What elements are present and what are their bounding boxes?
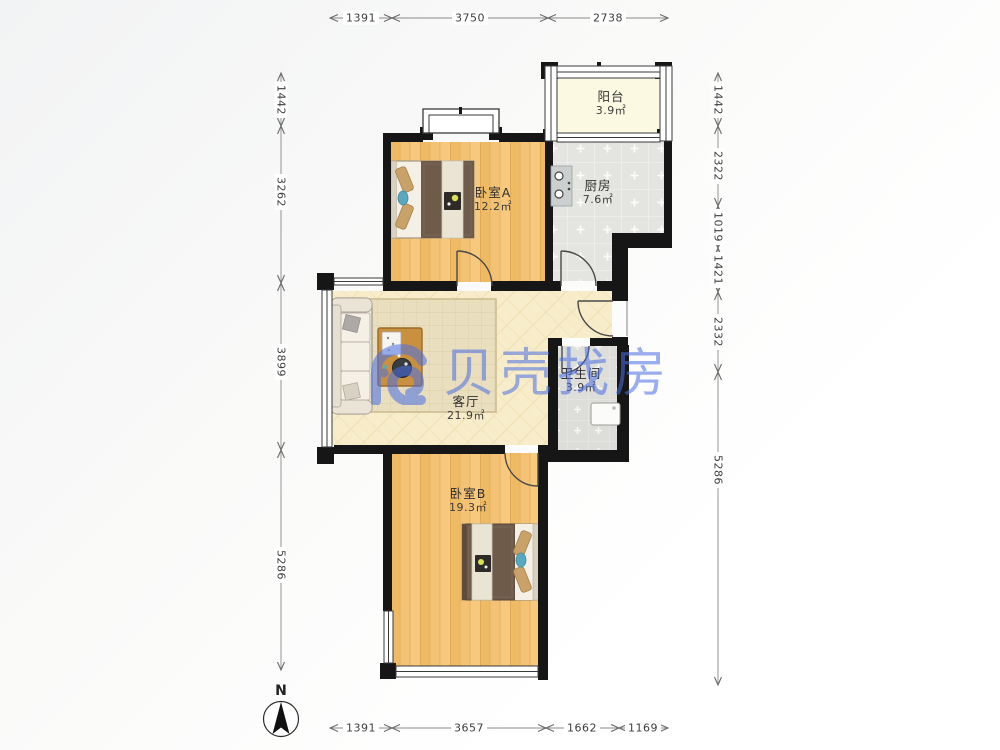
dim-label-right-4: 2332 [712,314,725,350]
bed-b [462,524,539,600]
room-area: 19.3㎡ [449,502,487,515]
dim-label-top-2: 2738 [590,12,626,25]
vase [393,359,412,378]
bathtub [591,403,620,425]
room-label-balcony: 阳台 3.9㎡ [596,90,627,118]
dim-label-bottom-0: 1391 [343,722,379,735]
room-name: 阳台 [596,90,627,104]
dim-label-right-1: 2322 [712,148,725,184]
dim-label-top-1: 3750 [452,12,488,25]
kitchen-floor [553,142,664,281]
coffee-table [378,328,422,386]
compass [264,702,299,737]
compass-north-label: N [275,683,287,699]
bedroom-b-left-wall [383,445,392,611]
dim-label-right-0: 1442 [712,82,725,118]
bedroom-b-left-window [384,611,393,663]
living-room-top-window [334,278,383,285]
dim-label-bottom-1: 3657 [451,722,487,735]
room-name: 客厅 [447,395,485,409]
dim-label-bottom-2: 1662 [564,722,600,735]
dim-label-right-2: 1019 [712,209,725,245]
bedroom-a-bay-window [423,107,499,133]
room-label-bedroom-a: 卧室A 12.2㎡ [474,186,512,214]
dim-label-top-0: 1391 [343,12,379,25]
room-label-living-room: 客厅 21.9㎡ [447,395,485,423]
living-room-bottom-wall [334,445,505,454]
room-name: 厨房 [583,179,614,193]
room-name: 卧室A [474,186,512,200]
stove [551,166,572,206]
room-name: 卧室B [449,487,487,501]
room-area: 12.2㎡ [474,201,512,214]
dim-label-right-5: 5286 [712,452,725,488]
bedroom-b-right-wall [538,445,548,680]
room-area: 21.9㎡ [447,410,485,423]
room-name: 卫生间 [561,367,602,381]
bedroom-b-bottom-window [396,666,538,677]
bed-a [391,161,474,238]
sofa [331,298,372,414]
room-label-bedroom-b: 卧室B 19.3㎡ [449,487,487,515]
dim-label-left-3: 5286 [275,547,288,583]
dim-label-left-1: 3262 [275,174,288,210]
room-label-kitchen: 厨房 7.6㎡ [583,179,614,207]
bathroom-floor [558,346,617,450]
kitchen-right-wall [664,134,672,248]
dim-label-right-3: 1421 [712,252,725,288]
floorplan-drawing [0,0,1000,750]
room-area: 3.9㎡ [596,105,627,118]
room-area: 3.9㎡ [561,382,602,395]
bathroom-left-wall [548,346,558,450]
room-area: 7.6㎡ [583,194,614,207]
room-label-bathroom: 卫生间 3.9㎡ [561,367,602,395]
dim-label-left-0: 1442 [275,82,288,118]
bedroom-a-left-wall [383,133,391,291]
dim-label-left-2: 3899 [275,344,288,380]
floorplan-canvas: 阳台 3.9㎡ 厨房 7.6㎡ 卧室A 12.2㎡ 客厅 21.9㎡ 卫生间 3… [0,0,1000,750]
bedroom-a-kitchen-wall [545,133,553,291]
dim-label-bottom-3: 1169 [625,722,661,735]
living-room-left-window [322,290,332,447]
